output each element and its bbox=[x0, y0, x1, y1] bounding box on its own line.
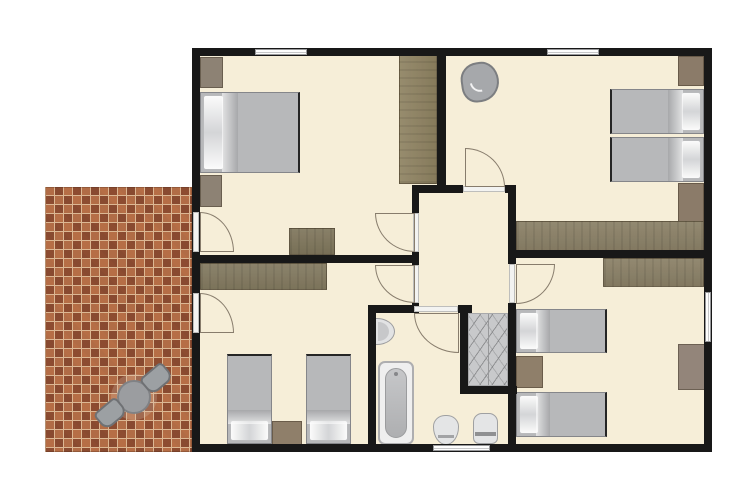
wall-hallway-right-b bbox=[508, 303, 516, 444]
twin-bed-bottomright-2 bbox=[516, 392, 607, 437]
twin-bed-topright-1 bbox=[610, 89, 704, 134]
nightstand-bottomright bbox=[516, 356, 543, 388]
counter-desk-bottomleft bbox=[200, 263, 327, 290]
twin-bed-bottomright-1 bbox=[516, 309, 607, 353]
double-bed bbox=[200, 92, 300, 173]
wardrobe-topleft-corner bbox=[200, 57, 223, 88]
twin-bed-bottomleft-1 bbox=[227, 354, 272, 444]
wall-topright-room-bottom bbox=[508, 250, 712, 258]
wall-hallway-left-a bbox=[412, 185, 419, 213]
wall-bathroom-left bbox=[368, 305, 376, 444]
threshold-patio-bottom-door bbox=[193, 293, 199, 333]
bidet bbox=[473, 413, 498, 444]
wall-hall-bottom-stub bbox=[458, 305, 472, 313]
dresser-topleft bbox=[200, 175, 222, 207]
stairs bbox=[468, 313, 508, 386]
wardrobe-topright-upper bbox=[678, 56, 704, 86]
desk-topleft-room bbox=[289, 228, 335, 255]
nightstand-bottomleft bbox=[272, 421, 302, 446]
window-right-wall bbox=[705, 292, 711, 342]
window-top-right-room bbox=[547, 49, 599, 55]
tall-wardrobe bbox=[399, 52, 437, 184]
threshold-bathroom bbox=[414, 306, 458, 312]
wall-divider-top-rooms bbox=[437, 48, 446, 192]
wall-bathroom-top bbox=[368, 305, 414, 313]
twin-bed-bottomleft-2 bbox=[306, 354, 351, 444]
window-top-left-room bbox=[255, 49, 307, 55]
wall-hallway-right-a bbox=[508, 185, 516, 264]
wall-divider-left-rooms bbox=[192, 255, 419, 263]
twin-bed-topright-2 bbox=[610, 137, 704, 182]
desk-bottomright bbox=[603, 258, 704, 287]
window-bathroom bbox=[433, 445, 490, 451]
wall-stairs-bottom bbox=[460, 386, 517, 394]
bathtub bbox=[378, 361, 414, 445]
threshold-hallway-right bbox=[509, 264, 515, 303]
wall-hallway-top-left bbox=[412, 185, 463, 193]
wardrobe-bottomright bbox=[678, 344, 705, 390]
floor-plan bbox=[0, 0, 755, 504]
wall-stairs-left bbox=[460, 313, 468, 393]
long-desk-topright bbox=[516, 221, 704, 253]
threshold-patio-top-door bbox=[193, 212, 199, 252]
